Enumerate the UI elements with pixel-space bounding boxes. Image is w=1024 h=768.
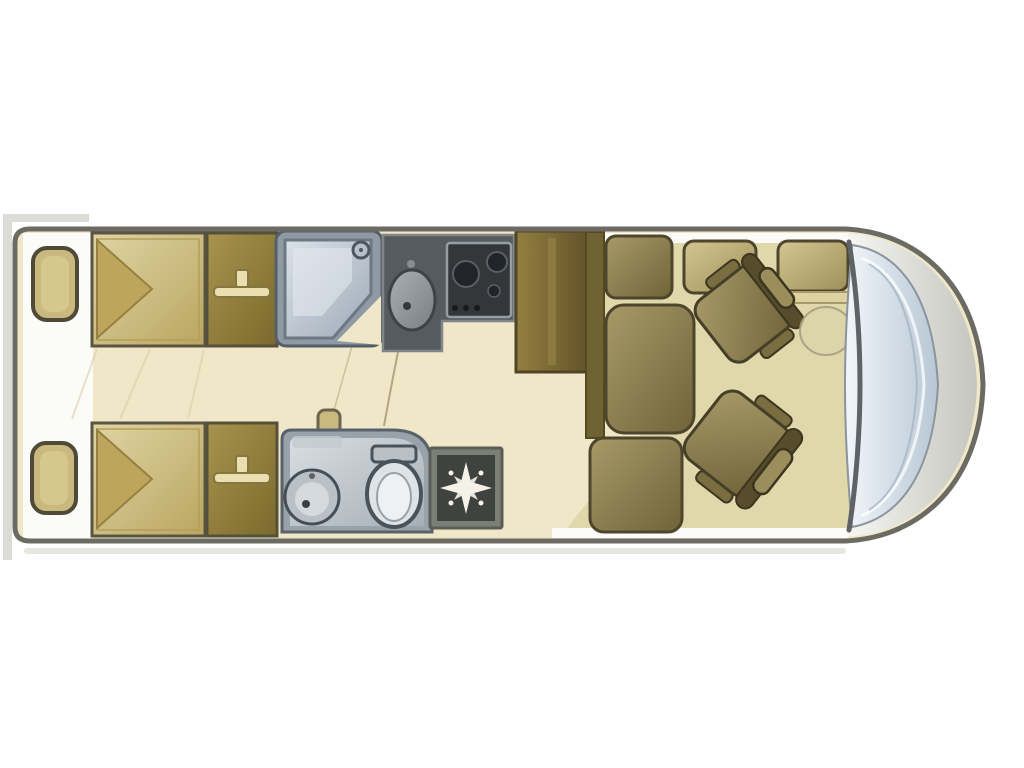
- kitchen-sink: [389, 270, 435, 330]
- washbasin: [285, 470, 339, 524]
- bed-bottom: [92, 423, 205, 536]
- toilet: [367, 446, 421, 527]
- wardrobe-top: [207, 233, 277, 346]
- cooktop: [447, 243, 511, 317]
- seat-side-panel: [586, 232, 604, 438]
- rear-locker-bottom: [32, 443, 76, 513]
- faucet-icon: [407, 260, 415, 268]
- heater-unit: [430, 448, 502, 528]
- fridge-cabinet: [516, 231, 588, 372]
- shower-cubicle: [276, 231, 382, 346]
- bed-top: [92, 233, 205, 346]
- floorplan-svg: [0, 0, 1024, 768]
- lounge-table: [800, 307, 852, 355]
- lounge-seat-middle: [606, 305, 694, 433]
- floorplan-image: [0, 0, 1024, 768]
- vehicle-shadow: [24, 548, 846, 554]
- lounge-seat-bottom: [590, 438, 682, 532]
- dinette-bench-right: [778, 241, 848, 291]
- wardrobe-bottom: [207, 423, 277, 536]
- lounge-seat-top: [606, 236, 672, 298]
- rear-locker-top: [33, 248, 77, 320]
